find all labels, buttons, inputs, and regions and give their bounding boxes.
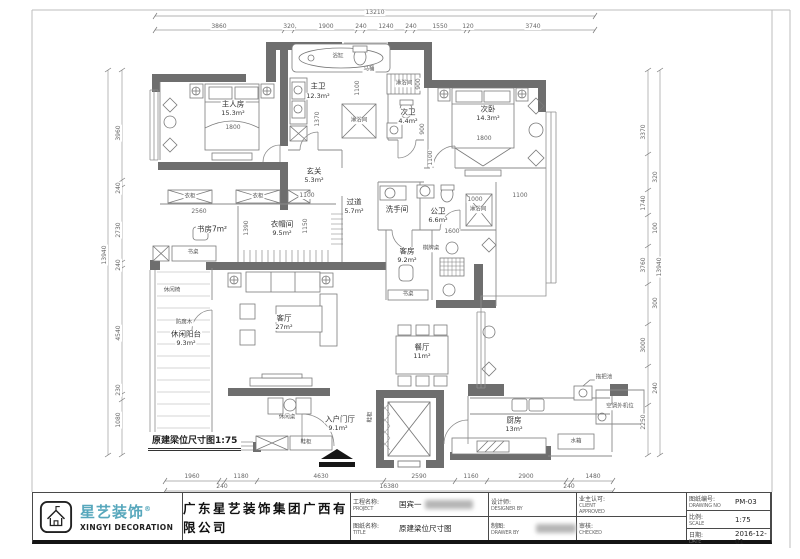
balcony-deck bbox=[157, 272, 210, 438]
doors bbox=[192, 132, 468, 446]
field-date: 日期:DATE 2016-12-01 bbox=[687, 528, 770, 546]
field-drawer: 制图:DRAWER BY bbox=[489, 516, 576, 540]
titleblock-col-designer: 设计师:DESIGNER BY 制图:DRAWER BY bbox=[489, 493, 577, 540]
titleblock-col-meta: 图纸编号:DRAWING NO PM-03 比例:SCALE 1:75 日期:D… bbox=[687, 493, 771, 540]
elevator bbox=[380, 402, 430, 467]
redacted-text bbox=[536, 524, 576, 533]
field-drawing-no: 图纸编号:DRAWING NO PM-03 bbox=[687, 493, 770, 510]
titleblock-col-approve: 业主认可:CLIENT APPROVED 审核:CHECKED bbox=[577, 493, 687, 540]
company-logo: 星艺装饰® XINGYI DECORATION bbox=[33, 493, 183, 540]
redacted-text bbox=[425, 500, 473, 509]
field-designer: 设计师:DESIGNER BY bbox=[489, 493, 576, 516]
house-logo-icon bbox=[39, 500, 73, 534]
title-block: 星艺装饰® XINGYI DECORATION 广东星艺装饰集团广西有限公司 工… bbox=[32, 492, 772, 544]
titleblock-col-project: 工程名称:PROJECT 国宾一 图纸名称:TITLE 原建梁位尺寸图 bbox=[351, 493, 489, 540]
brand-text: 星艺装饰® XINGYI DECORATION bbox=[80, 501, 173, 532]
entrance-arrow-icon bbox=[319, 449, 355, 467]
brand-name-cn: 星艺装饰® bbox=[80, 501, 173, 522]
field-client-approved: 业主认可:CLIENT APPROVED bbox=[577, 493, 686, 516]
brand-name-en: XINGYI DECORATION bbox=[80, 523, 173, 532]
field-scale: 比例:SCALE 1:75 bbox=[687, 510, 770, 528]
drawing-title-label: 原建梁位尺寸图1:75 bbox=[148, 432, 241, 451]
company-name: 广东星艺装饰集团广西有限公司 bbox=[183, 493, 351, 540]
field-title: 图纸名称:TITLE 原建梁位尺寸图 bbox=[351, 516, 488, 540]
field-project: 工程名称:PROJECT 国宾一 bbox=[351, 493, 488, 516]
drawing-sheet: 主人房15.3m²主卫12.3m²次卫4.4m²次卧14.3m²玄关5.3m²过… bbox=[0, 0, 800, 559]
field-checked: 审核:CHECKED bbox=[577, 516, 686, 540]
floor-plan-drawing bbox=[0, 0, 800, 559]
